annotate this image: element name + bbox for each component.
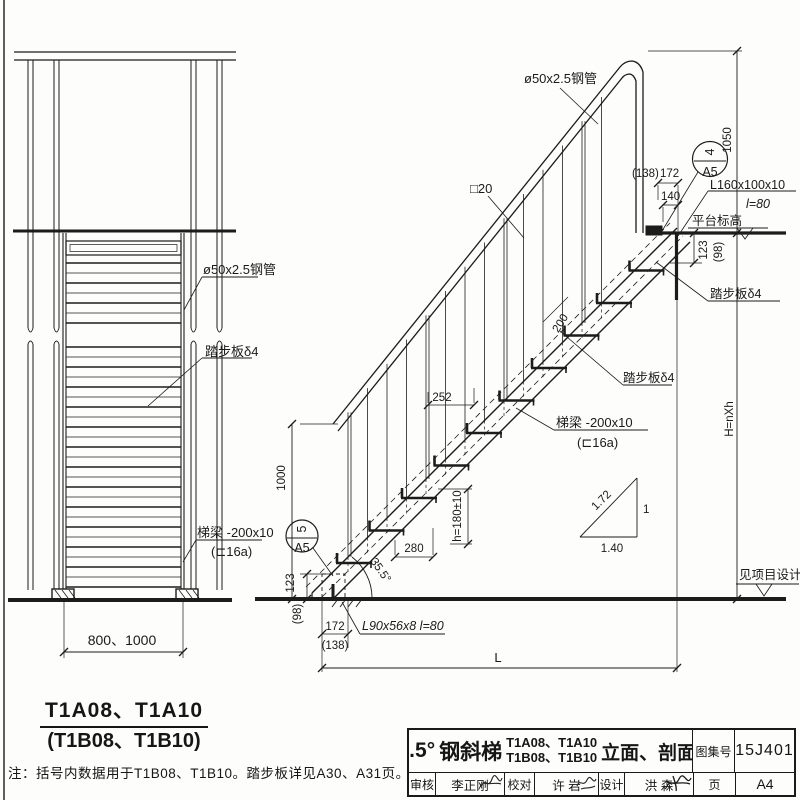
front-pipe-label: ø50x2.5钢管 bbox=[203, 262, 276, 277]
dim-total-height: H=nXh bbox=[724, 401, 736, 436]
dim-138-bottom: (138) bbox=[322, 640, 349, 652]
section-view-linework bbox=[255, 61, 799, 672]
check-label: 校对 bbox=[504, 773, 534, 795]
drawing-sheet: { "front": { "label_pipe": "ø50x2.5钢管", … bbox=[0, 0, 800, 800]
dim-123-top: 123 bbox=[698, 240, 710, 259]
dim-slope-angle: 35.5° bbox=[368, 556, 393, 585]
dimension-ticks bbox=[60, 47, 741, 672]
title-name: 钢斜梯 bbox=[439, 736, 502, 766]
title-suffix: 立面、剖面图 bbox=[601, 738, 692, 765]
signature-scribble bbox=[478, 774, 504, 792]
dim-280: 280 bbox=[404, 543, 423, 555]
audit-name: 李正刚 bbox=[435, 773, 504, 795]
angle-cleat-top-length: l=80 bbox=[746, 197, 770, 211]
title-models-line2: T1B08、T1B10 bbox=[506, 751, 597, 766]
page-label: 页 bbox=[693, 773, 735, 795]
detail-ref-bottom-page: A5 bbox=[294, 541, 309, 555]
dimension-lines bbox=[292, 51, 742, 672]
section-pipe-label: ø50x2.5钢管 bbox=[524, 71, 597, 86]
dim-98-top: (98) bbox=[713, 242, 725, 263]
front-view-title: T1A08、T1A10 bbox=[40, 694, 208, 728]
note-text: 注：括号内数据用于T1B08、T1B10。踏步板详见A30、A31页。 bbox=[8, 762, 410, 782]
tread-label-mid: 踏步板δ4 bbox=[623, 371, 674, 385]
page-number: A4 bbox=[735, 773, 794, 795]
stair-drawing-canvas: ø50x2.5钢管 踏步板δ4 梯梁 -200x10 (⊏16a) 800、10… bbox=[0, 0, 800, 800]
dim-140: 140 bbox=[661, 191, 680, 203]
front-view-title-alt: (T1B08、T1B10) bbox=[40, 724, 208, 753]
front-beam-label: 梯梁 -200x10 bbox=[197, 525, 274, 540]
detail-ref-bottom-number: 5 bbox=[295, 525, 309, 532]
title-models-line1: T1A08、T1A10 bbox=[506, 736, 597, 751]
dim-252: 252 bbox=[432, 392, 451, 404]
slope-rise: 1 bbox=[643, 504, 649, 516]
title-block-bottom-row: 审核 李正刚 校对 许 岩 设计 洪 森 页 A4 bbox=[409, 772, 794, 795]
dim-98-bottom: (98) bbox=[292, 604, 304, 625]
signature-scribble bbox=[574, 774, 598, 792]
slope-run: 1.40 bbox=[601, 543, 623, 555]
audit-label: 审核 bbox=[409, 773, 435, 795]
section-view-balusters bbox=[348, 97, 602, 575]
design-label: 设计 bbox=[598, 773, 624, 795]
title-block-top-row: 35.5° 钢斜梯 T1A08、T1A10 T1B08、T1B10 立面、剖面图… bbox=[409, 730, 794, 772]
dim-123-bottom: 123 bbox=[285, 573, 297, 592]
project-level-label: 见项目设计 bbox=[739, 567, 800, 582]
check-name: 许 岩 bbox=[534, 773, 598, 795]
dim-172: 172 bbox=[660, 168, 679, 180]
angle-cleat-top-label: L160x100x10 bbox=[710, 178, 785, 192]
dim-138: (138) bbox=[632, 168, 659, 180]
dim-1000: 1000 bbox=[276, 465, 288, 491]
dim-total-length: L bbox=[494, 650, 501, 665]
dim-200: 200 bbox=[551, 312, 571, 335]
title-block: 35.5° 钢斜梯 T1A08、T1A10 T1B08、T1B10 立面、剖面图… bbox=[407, 728, 796, 797]
front-beam-alt-label: (⊏16a) bbox=[211, 544, 252, 559]
title-angle: 35.5° bbox=[409, 739, 435, 763]
design-name: 洪 森 bbox=[624, 773, 693, 795]
section-beam-label: 梯梁 -200x10 bbox=[556, 415, 633, 430]
signature-scribble bbox=[663, 774, 693, 792]
atlas-number-value: 15J401 bbox=[734, 730, 794, 772]
detail-ref-top-number: 4 bbox=[703, 148, 717, 155]
section-baluster-label: □20 bbox=[470, 181, 492, 196]
slope-hypotenuse: 1.72 bbox=[590, 489, 614, 513]
title-block-title-cell: 35.5° 钢斜梯 T1A08、T1A10 T1B08、T1B10 立面、剖面图 bbox=[409, 730, 692, 772]
atlas-number-label: 图集号 bbox=[692, 730, 734, 772]
platform-level-label: 平台标高 bbox=[692, 213, 742, 228]
front-width-dim: 800、1000 bbox=[88, 632, 157, 648]
detail-ref-top-page: A5 bbox=[702, 165, 717, 179]
section-beam-alt-label: (⊏16a) bbox=[577, 435, 618, 450]
front-view-treads bbox=[66, 263, 181, 587]
title-models: T1A08、T1A10 T1B08、T1B10 bbox=[506, 736, 597, 766]
front-tread-label: 踏步板δ4 bbox=[205, 344, 258, 359]
dim-1050: 1050 bbox=[722, 127, 734, 153]
dim-riser-height: h=180±10 bbox=[452, 490, 464, 541]
tread-label-top: 踏步板δ4 bbox=[710, 287, 761, 301]
angle-cleat-bottom-label: L90x56x8 l=80 bbox=[362, 619, 444, 633]
dim-172-bottom: 172 bbox=[325, 621, 344, 633]
